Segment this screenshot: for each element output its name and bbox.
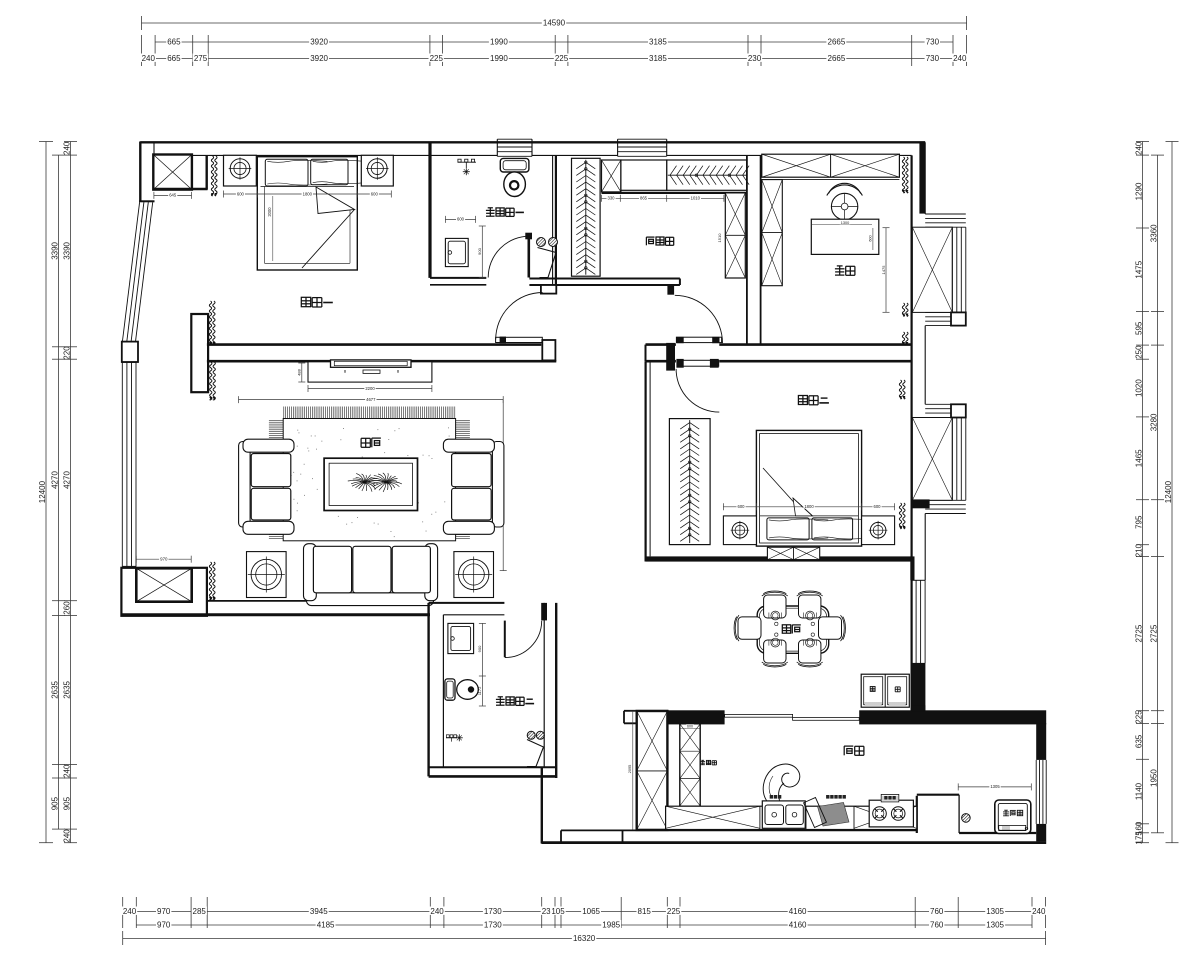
svg-text:16320: 16320 (573, 934, 596, 943)
svg-text:600: 600 (457, 217, 465, 222)
svg-text:488: 488 (297, 368, 302, 375)
svg-text:730: 730 (926, 54, 940, 63)
svg-text:1475: 1475 (881, 265, 886, 275)
svg-text:12400: 12400 (1164, 480, 1173, 503)
svg-text:210: 210 (1134, 543, 1143, 557)
svg-text:1290: 1290 (1134, 182, 1143, 200)
svg-text:1465: 1465 (1134, 449, 1143, 467)
svg-text:4270: 4270 (50, 471, 59, 489)
svg-text:1305: 1305 (986, 921, 1004, 930)
svg-text:1172: 1172 (477, 686, 482, 695)
svg-text:3360: 3360 (1149, 224, 1158, 242)
svg-text:645: 645 (169, 193, 177, 198)
svg-text:4185: 4185 (317, 921, 335, 930)
svg-text:795: 795 (1134, 515, 1143, 529)
svg-text:1950: 1950 (1149, 769, 1158, 787)
svg-text:760: 760 (930, 921, 944, 930)
svg-text:905: 905 (50, 796, 59, 810)
svg-text:3390: 3390 (50, 241, 59, 259)
svg-text:14590: 14590 (543, 19, 566, 28)
svg-text:260: 260 (62, 601, 71, 615)
svg-text:2665: 2665 (828, 54, 846, 63)
svg-text:1140: 1140 (1134, 782, 1143, 800)
svg-text:240: 240 (953, 54, 967, 63)
svg-text:275: 275 (194, 54, 208, 63)
svg-text:970: 970 (160, 557, 168, 562)
svg-text:865: 865 (640, 196, 648, 201)
svg-text:905: 905 (62, 796, 71, 810)
svg-text:2665: 2665 (828, 38, 846, 47)
svg-text:1510: 1510 (717, 233, 722, 243)
svg-text:225: 225 (667, 907, 681, 916)
svg-text:730: 730 (926, 38, 940, 47)
svg-text:220: 220 (62, 346, 71, 360)
svg-text:1985: 1985 (602, 921, 620, 930)
svg-text:1990: 1990 (490, 38, 508, 47)
svg-text:1475: 1475 (1134, 260, 1143, 278)
svg-text:175: 175 (1134, 831, 1143, 845)
svg-text:240: 240 (1134, 141, 1143, 155)
svg-text:2725: 2725 (1149, 624, 1158, 642)
svg-text:330: 330 (608, 196, 616, 201)
svg-text:4160: 4160 (789, 921, 807, 930)
svg-text:760: 760 (930, 907, 944, 916)
svg-text:600: 600 (687, 725, 693, 729)
svg-text:600: 600 (237, 191, 245, 196)
svg-text:4270: 4270 (62, 471, 71, 489)
svg-text:3390: 3390 (62, 241, 71, 259)
svg-text:12400: 12400 (38, 480, 47, 503)
svg-text:1800: 1800 (804, 504, 814, 509)
svg-text:2725: 2725 (1134, 624, 1143, 642)
svg-text:1990: 1990 (490, 54, 508, 63)
svg-text:635: 635 (1134, 734, 1143, 748)
svg-text:1305: 1305 (990, 784, 1000, 789)
svg-text:3945: 3945 (310, 907, 328, 916)
svg-text:1010: 1010 (691, 196, 701, 201)
svg-text:595: 595 (1134, 321, 1143, 335)
svg-text:600: 600 (869, 235, 873, 241)
svg-text:3280: 3280 (1149, 413, 1158, 431)
svg-text:4160: 4160 (789, 907, 807, 916)
svg-text:1730: 1730 (484, 921, 502, 930)
svg-text:285: 285 (193, 907, 207, 916)
svg-text:1020: 1020 (1134, 379, 1143, 397)
svg-text:240: 240 (142, 54, 156, 63)
svg-text:1300: 1300 (841, 221, 849, 225)
svg-text:600: 600 (738, 504, 746, 509)
svg-text:970: 970 (157, 907, 171, 916)
svg-text:230: 230 (748, 54, 762, 63)
svg-text:3185: 3185 (649, 54, 667, 63)
svg-text:225: 225 (555, 54, 569, 63)
svg-text:3185: 3185 (649, 38, 667, 47)
svg-text:1730: 1730 (484, 907, 502, 916)
svg-text:2635: 2635 (50, 680, 59, 698)
svg-text:815: 815 (638, 907, 652, 916)
svg-text:4677: 4677 (366, 397, 376, 402)
svg-text:240: 240 (123, 907, 137, 916)
svg-text:1800: 1800 (303, 191, 313, 196)
svg-text:2635: 2635 (62, 680, 71, 698)
svg-text:225: 225 (430, 54, 444, 63)
svg-text:2000: 2000 (267, 207, 272, 217)
svg-text:105: 105 (551, 907, 565, 916)
svg-text:1065: 1065 (582, 907, 600, 916)
svg-text:665: 665 (167, 54, 181, 63)
svg-text:3920: 3920 (310, 54, 328, 63)
svg-text:900: 900 (477, 247, 482, 254)
svg-text:240: 240 (430, 907, 444, 916)
svg-text:600: 600 (371, 191, 379, 196)
svg-text:600: 600 (874, 504, 882, 509)
svg-text:665: 665 (167, 38, 181, 47)
svg-text:900: 900 (477, 645, 482, 652)
svg-text:240: 240 (62, 141, 71, 155)
svg-text:240: 240 (62, 829, 71, 843)
svg-text:250: 250 (1134, 345, 1143, 359)
svg-text:1305: 1305 (986, 907, 1004, 916)
svg-text:3920: 3920 (310, 38, 328, 47)
svg-text:240: 240 (62, 764, 71, 778)
svg-text:2200: 2200 (365, 386, 375, 391)
svg-text:970: 970 (157, 921, 171, 930)
svg-text:2095: 2095 (628, 765, 632, 773)
svg-text:225: 225 (1134, 710, 1143, 724)
svg-text:240: 240 (1032, 907, 1046, 916)
